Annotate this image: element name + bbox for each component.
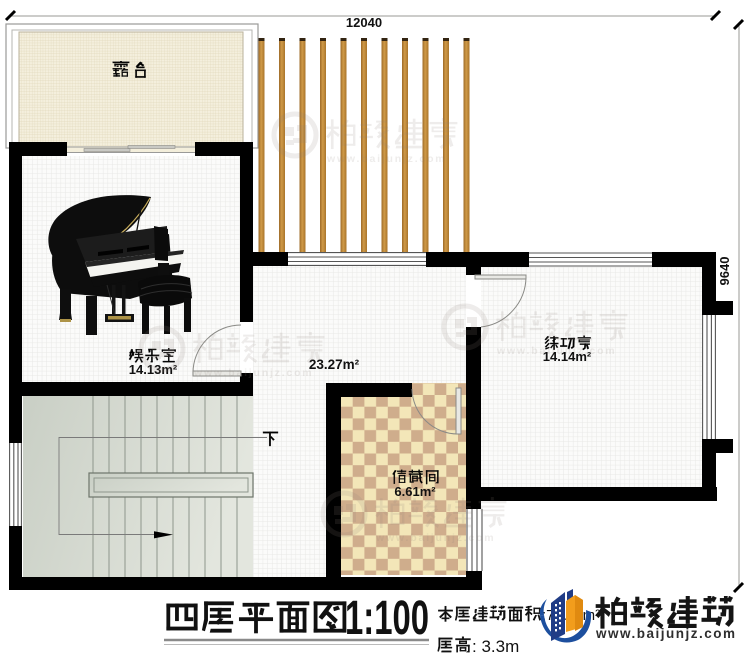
svg-text:www.baijunjz.com: www.baijunjz.com [595, 626, 737, 641]
svg-text:12040: 12040 [346, 15, 382, 30]
svg-text:: 3.3m: : 3.3m [472, 637, 519, 656]
svg-text:1:100: 1:100 [345, 592, 429, 645]
svg-text:23.27m²: 23.27m² [309, 357, 360, 372]
svg-text:9640: 9640 [717, 257, 732, 286]
svg-text:6.61m²: 6.61m² [394, 484, 436, 499]
